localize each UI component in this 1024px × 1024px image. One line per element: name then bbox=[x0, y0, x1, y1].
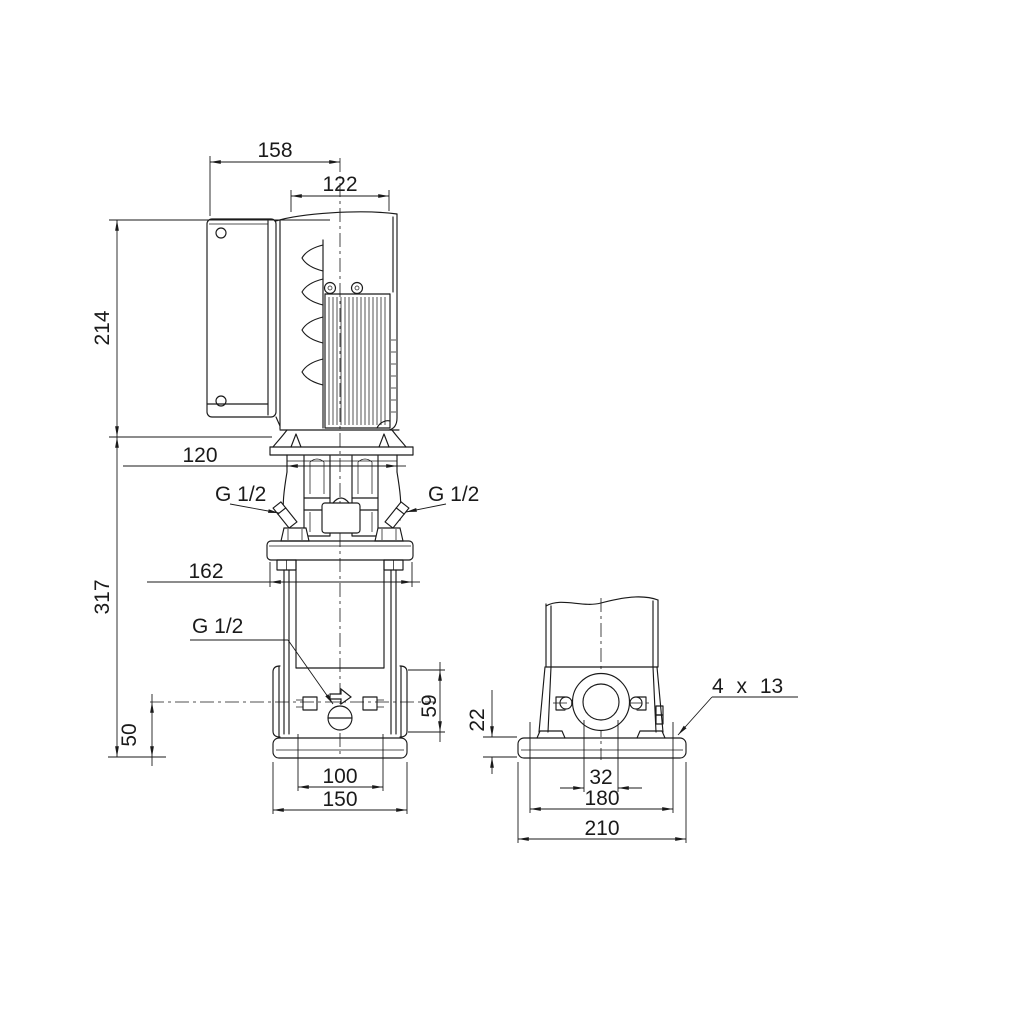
screw-icon bbox=[352, 283, 363, 294]
dim-50: 50 bbox=[118, 694, 152, 766]
foot-pad-left bbox=[537, 731, 565, 738]
plug-boss-right bbox=[363, 697, 377, 710]
screw-hole bbox=[216, 228, 226, 238]
dim-120: 120 bbox=[123, 444, 406, 472]
motor-stool bbox=[270, 430, 413, 455]
gauge-plug-left bbox=[273, 502, 297, 528]
port-flange-right bbox=[400, 666, 407, 737]
dimensional-drawing-canvas: 158 122 214 317 120 bbox=[0, 0, 1024, 1024]
latch bbox=[656, 706, 663, 715]
dim-50-label: 50 bbox=[118, 723, 141, 746]
g12-left-label: G 1/2 bbox=[215, 483, 266, 506]
motor-body bbox=[276, 212, 397, 430]
dim-214-label: 214 bbox=[91, 310, 114, 345]
dim-150-label: 150 bbox=[322, 788, 357, 811]
dim-122: 122 bbox=[291, 173, 389, 212]
callout-g12-right: G 1/2 bbox=[406, 483, 479, 512]
callout-base-holes: 4 x 13 bbox=[678, 675, 798, 735]
port-flange bbox=[573, 674, 630, 731]
dim-122-label: 122 bbox=[322, 173, 357, 196]
dim-59-label: 59 bbox=[418, 694, 441, 717]
dim-100: 100 bbox=[298, 734, 383, 791]
g12-drain-label: G 1/2 bbox=[192, 615, 243, 638]
motor-fins bbox=[329, 297, 385, 425]
dim-158-label: 158 bbox=[257, 139, 292, 162]
coupling bbox=[322, 503, 360, 533]
port-flange-left bbox=[273, 666, 280, 737]
dim-162-label: 162 bbox=[188, 560, 223, 583]
front-view bbox=[518, 597, 686, 760]
dimensions: 158 122 214 317 120 bbox=[91, 139, 798, 843]
dim-158: 158 bbox=[210, 139, 340, 216]
dim-22-label: 22 bbox=[466, 708, 489, 731]
dim-317: 317 bbox=[91, 437, 166, 757]
g12-right-label: G 1/2 bbox=[428, 483, 479, 506]
dim-120-label: 120 bbox=[182, 444, 217, 467]
screw-icon bbox=[325, 283, 336, 294]
clamp-strip bbox=[276, 220, 323, 429]
pump-dimensional-drawing: 158 122 214 317 120 bbox=[0, 0, 1024, 1024]
front-view-base bbox=[518, 738, 686, 758]
hex-boss-left bbox=[281, 528, 309, 541]
hex-boss-right bbox=[375, 528, 403, 541]
dim-22: 22 bbox=[466, 690, 517, 774]
callout-g12-left: G 1/2 bbox=[215, 483, 279, 513]
vent-slots bbox=[391, 340, 396, 412]
dim-180-label: 180 bbox=[584, 787, 619, 810]
gauge-plug-right bbox=[385, 502, 409, 528]
control-box bbox=[207, 219, 276, 417]
dim-32-label: 32 bbox=[589, 766, 612, 789]
plug-boss-left bbox=[303, 697, 317, 710]
foot-pad-right bbox=[637, 731, 665, 738]
dim-100-label: 100 bbox=[322, 765, 357, 788]
dim-317-label: 317 bbox=[91, 579, 114, 614]
callout-g12-drain: G 1/2 bbox=[190, 615, 333, 704]
dim-210-label: 210 bbox=[584, 817, 619, 840]
break-line bbox=[546, 597, 658, 606]
callout-base-holes-label: 4 x 13 bbox=[712, 675, 783, 698]
